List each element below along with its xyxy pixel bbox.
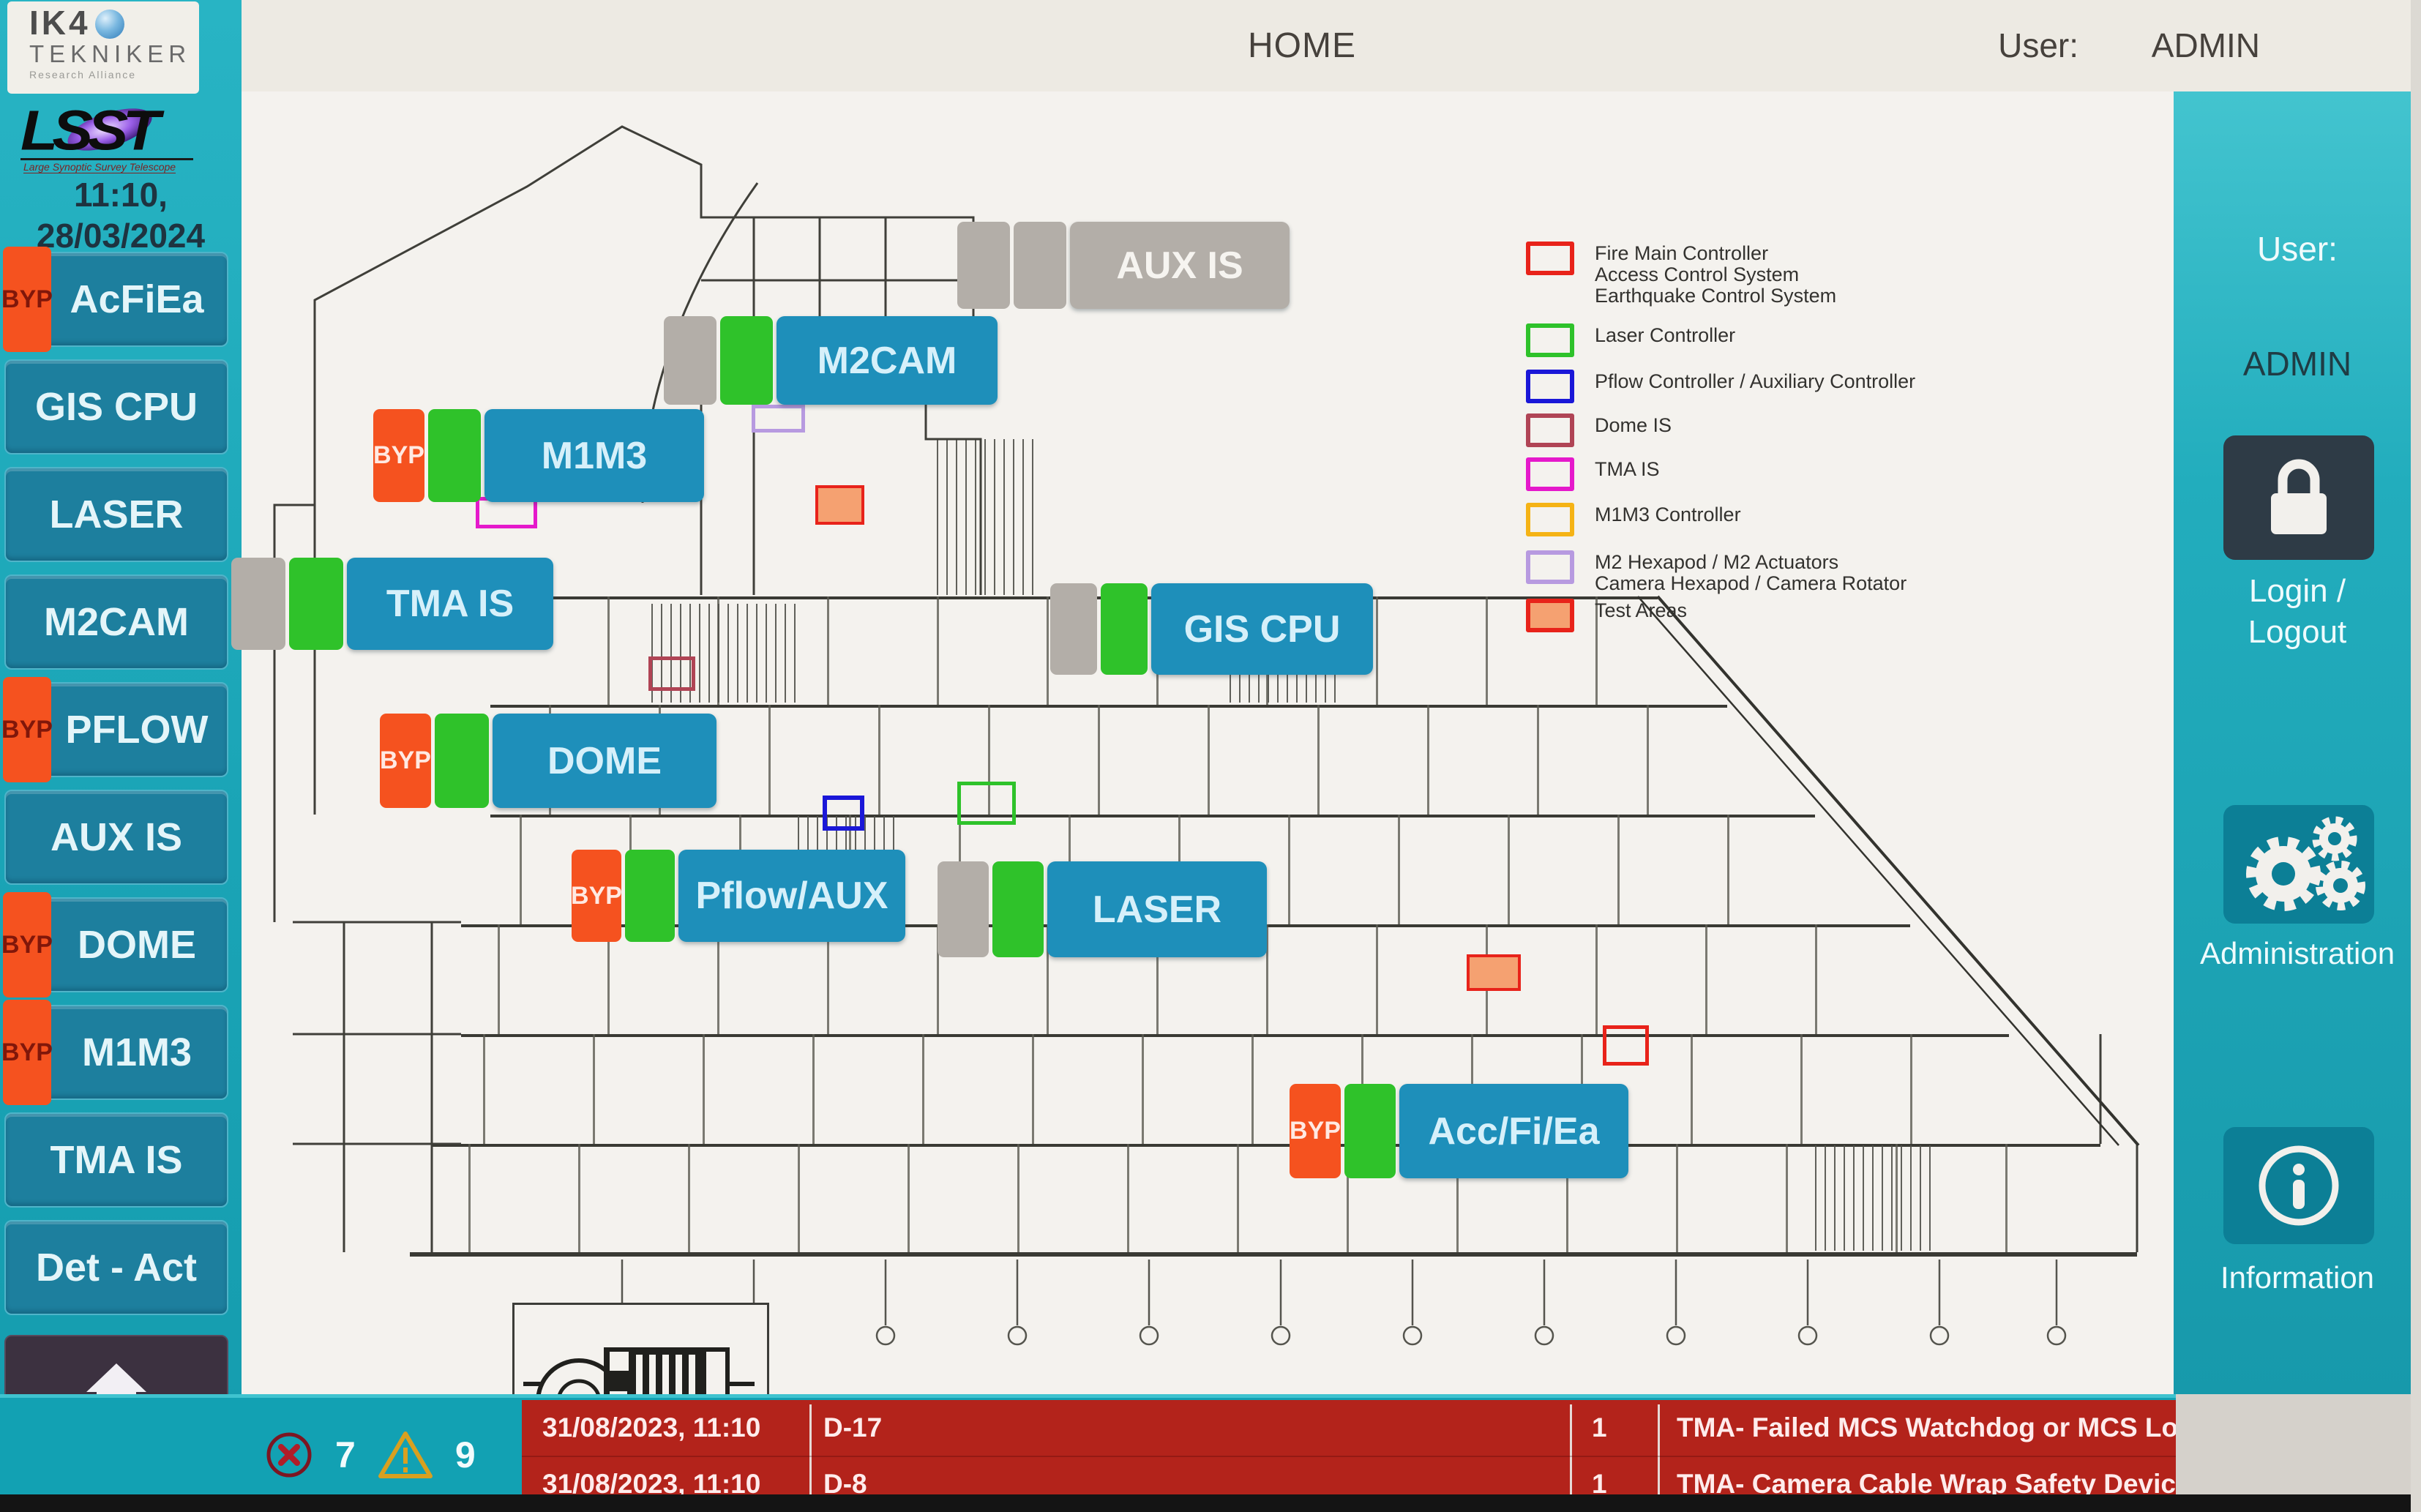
sidebar-item-dome[interactable]: BYP DOME — [4, 897, 228, 992]
lsst-logo-text: LSST — [20, 98, 154, 163]
alarm-code: D-17 — [823, 1400, 882, 1456]
header-user-label: User: — [1998, 0, 2078, 91]
sidebar-item-label: M1M3 — [82, 1030, 192, 1075]
legend-swatch — [1526, 323, 1574, 357]
status-indicator — [289, 558, 343, 650]
map-overlay-laser: LASER — [938, 861, 1267, 957]
indicator-pflow-controller — [823, 796, 864, 831]
status-indicator — [720, 316, 773, 405]
screen-bezel — [0, 1494, 2421, 1512]
legend-label: Dome IS — [1595, 413, 1672, 436]
legend-label: M2 Hexapod / M2 Actuators Camera Hexapod… — [1595, 550, 1907, 594]
sidebar-item-label: TMA IS — [50, 1137, 183, 1183]
tekniker-logo-text: TEKNIKER — [29, 40, 199, 69]
left-sidebar: IK4 TEKNIKER Research Alliance LSST Larg… — [0, 0, 242, 1512]
m2cam-map-button[interactable]: M2CAM — [777, 316, 998, 405]
ik4-tagline: Research Alliance — [29, 69, 199, 81]
tma-is-map-button[interactable]: TMA IS — [347, 558, 553, 650]
user-value: ADMIN — [2174, 344, 2421, 383]
legend-swatch — [1526, 370, 1574, 403]
sidebar-item-tma-is[interactable]: TMA IS — [4, 1112, 228, 1208]
sidebar-item-acfiea[interactable]: BYP AcFiEa — [4, 252, 228, 347]
bypass-badge: BYP — [3, 892, 51, 998]
bypass-badge: BYP — [380, 714, 431, 808]
legend-label: M1M3 Controller — [1595, 503, 1741, 525]
information-label: Information — [2174, 1257, 2421, 1298]
sidebar-item-laser[interactable]: LASER — [4, 467, 228, 562]
status-indicator — [428, 409, 481, 502]
bypass-badge: BYP — [3, 247, 51, 352]
status-indicator — [1014, 222, 1066, 309]
lsst-tagline: Large Synoptic Survey Telescope — [23, 161, 176, 173]
information-button[interactable] — [2223, 1127, 2374, 1244]
sidebar-item-label: LASER — [49, 492, 183, 537]
legend-swatch — [1526, 550, 1574, 584]
pflow-aux-map-button[interactable]: Pflow/AUX — [678, 850, 905, 942]
sidebar-item-label: AUX IS — [50, 815, 182, 860]
warning-icon[interactable] — [378, 1430, 433, 1480]
map-overlay-tma-is: TMA IS — [231, 558, 553, 650]
gis-cpu-map-button[interactable]: GIS CPU — [1151, 583, 1373, 675]
legend-label: Test Areas — [1595, 599, 1687, 621]
clock: 11:10, 28/03/2024 — [0, 174, 242, 256]
ik4-sphere-icon — [95, 10, 124, 39]
right-sidebar: User: ADMIN Login / Logout Administratio… — [2174, 91, 2421, 1394]
legend-swatch — [1526, 413, 1574, 447]
indicator-dome-is — [648, 656, 695, 691]
sidebar-item-m2cam[interactable]: M2CAM — [4, 575, 228, 670]
warning-count: 9 — [455, 1434, 476, 1476]
map-overlay-m2cam: M2CAM — [664, 316, 998, 405]
status-indicator — [992, 861, 1044, 957]
indicator-test-area — [815, 485, 864, 525]
ik4-tekniker-logo: IK4 TEKNIKER Research Alliance — [7, 1, 199, 94]
map-overlay-aux-is: AUX IS — [957, 222, 1290, 309]
indicator-test-area — [1467, 954, 1521, 991]
sidebar-item-label: AcFiEa — [70, 277, 203, 322]
lock-icon — [2262, 455, 2335, 540]
legend-swatch — [1526, 503, 1574, 536]
sidebar-item-label: PFLOW — [66, 707, 209, 752]
info-icon — [2255, 1142, 2343, 1230]
status-indicator — [1101, 583, 1148, 675]
map-overlay-acc-fi-ea: BYP Acc/Fi/Ea — [1290, 1084, 1628, 1178]
sidebar-item-label: DOME — [78, 922, 196, 968]
indicator-fire-controller — [1603, 1025, 1649, 1066]
screen-bezel — [2411, 0, 2421, 1512]
login-label-line2: Logout — [2174, 612, 2421, 653]
legend-label: Pflow Controller / Auxiliary Controller — [1595, 370, 1915, 392]
equipment-cart-drawing — [514, 1305, 763, 1394]
sidebar-item-label: M2CAM — [44, 599, 189, 645]
alarm-time: 31/08/2023, 11:10 — [542, 1400, 760, 1456]
sidebar-item-label: GIS CPU — [35, 384, 198, 430]
status-indicator — [957, 222, 1010, 309]
sidebar-item-m1m3[interactable]: BYP M1M3 — [4, 1005, 228, 1100]
status-indicator — [231, 558, 285, 650]
aux-is-map-button[interactable]: AUX IS — [1070, 222, 1290, 309]
m1m3-map-button[interactable]: M1M3 — [484, 409, 704, 502]
status-indicator — [625, 850, 675, 942]
user-label: User: — [2174, 229, 2421, 269]
error-icon[interactable] — [265, 1431, 313, 1479]
header-bar: HOME User: ADMIN — [242, 0, 2421, 91]
status-indicator — [435, 714, 489, 808]
equipment-detail-box — [512, 1303, 769, 1394]
map-overlay-dome: BYP DOME — [380, 714, 716, 808]
legend-swatch — [1526, 599, 1574, 632]
legend-label: Fire Main Controller Access Control Syst… — [1595, 242, 1836, 307]
indicator-laser-controller — [957, 782, 1016, 825]
login-label-line1: Login / — [2174, 571, 2421, 612]
bypass-badge: BYP — [1290, 1084, 1341, 1178]
legend-label: Laser Controller — [1595, 323, 1735, 346]
bypass-badge: BYP — [3, 677, 51, 782]
sidebar-button-list: BYP AcFiEa GIS CPU LASER M2CAM BYP PFLOW… — [4, 252, 228, 1442]
status-indicator — [938, 861, 989, 957]
ik4-logo-text: IK4 — [29, 6, 199, 40]
map-overlay-gis-cpu: GIS CPU — [1050, 583, 1373, 675]
login-logout-button[interactable] — [2223, 435, 2374, 560]
legend-swatch — [1526, 242, 1574, 275]
status-indicator — [664, 316, 716, 405]
lsst-logo-rule — [20, 158, 193, 160]
map-overlay-m1m3: BYP M1M3 — [373, 409, 704, 502]
status-indicator — [1344, 1084, 1396, 1178]
administration-button[interactable] — [2223, 805, 2374, 924]
map-overlay-pflow-aux: BYP Pflow/AUX — [572, 850, 905, 942]
bypass-badge: BYP — [3, 1000, 51, 1105]
legend-swatch — [1526, 457, 1574, 491]
acc-fi-ea-map-button[interactable]: Acc/Fi/Ea — [1399, 1084, 1628, 1178]
dome-map-button[interactable]: DOME — [493, 714, 716, 808]
sidebar-item-det-act[interactable]: Det - Act — [4, 1220, 228, 1315]
legend-label: TMA IS — [1595, 457, 1660, 480]
alarm-count: 1 — [1592, 1400, 1607, 1456]
clock-time: 11:10, — [0, 174, 242, 215]
sidebar-item-aux-is[interactable]: AUX IS — [4, 790, 228, 885]
error-count: 7 — [335, 1434, 356, 1476]
sidebar-item-label: Det - Act — [36, 1245, 197, 1290]
administration-label: Administration — [2174, 933, 2421, 974]
lsst-logo: LSST Large Synoptic Survey Telescope — [20, 101, 196, 168]
page-title: HOME — [1248, 0, 1356, 91]
gears-icon — [2223, 809, 2374, 919]
header-user-value: ADMIN — [2152, 0, 2260, 91]
sidebar-item-pflow[interactable]: BYP PFLOW — [4, 682, 228, 777]
bypass-badge: BYP — [572, 850, 621, 942]
indicator-m2-hexapod — [752, 405, 805, 433]
sidebar-item-gis-cpu[interactable]: GIS CPU — [4, 359, 228, 454]
status-indicator — [1050, 583, 1097, 675]
laser-map-button[interactable]: LASER — [1047, 861, 1267, 957]
bypass-badge: BYP — [373, 409, 424, 502]
